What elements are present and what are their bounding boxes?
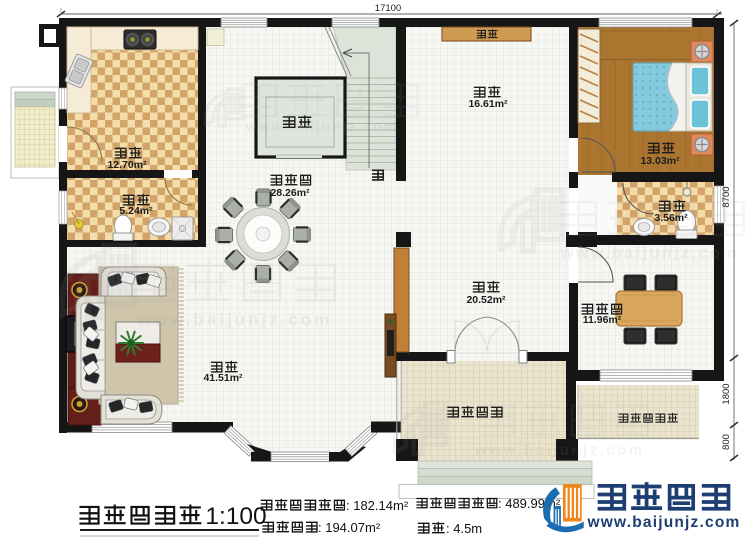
svg-text:www.baijunjz.com: www.baijunjz.com xyxy=(245,118,399,134)
svg-text:11.96m²: 11.96m² xyxy=(583,314,622,326)
svg-text:8700: 8700 xyxy=(721,186,732,207)
svg-text:13.03m²: 13.03m² xyxy=(640,155,680,167)
svg-text:800: 800 xyxy=(721,434,732,450)
svg-text:: 194.07m²: : 194.07m² xyxy=(318,520,381,535)
svg-text:16.61m²: 16.61m² xyxy=(468,98,508,110)
svg-text:www.baijunjz.com: www.baijunjz.com xyxy=(560,245,739,262)
svg-text:12.70m²: 12.70m² xyxy=(107,159,147,171)
svg-text:: 4.5m: : 4.5m xyxy=(446,521,482,536)
svg-text:17100: 17100 xyxy=(375,3,401,14)
svg-text:41.51m²: 41.51m² xyxy=(203,372,243,384)
svg-text:: 182.14m²: : 182.14m² xyxy=(346,498,409,513)
svg-text:1800: 1800 xyxy=(721,383,732,404)
svg-text:1:100: 1:100 xyxy=(205,503,266,530)
svg-text:20.52m²: 20.52m² xyxy=(466,294,506,306)
svg-text:www.baijunjz.com: www.baijunjz.com xyxy=(587,514,741,531)
svg-text:28.26m²: 28.26m² xyxy=(270,187,310,199)
svg-text:3.56m²: 3.56m² xyxy=(654,212,688,224)
svg-text:www.baijunjz.com: www.baijunjz.com xyxy=(474,442,644,459)
svg-text:5.24m²: 5.24m² xyxy=(119,205,153,217)
svg-text:www.baijunjz.com: www.baijunjz.com xyxy=(137,310,333,329)
